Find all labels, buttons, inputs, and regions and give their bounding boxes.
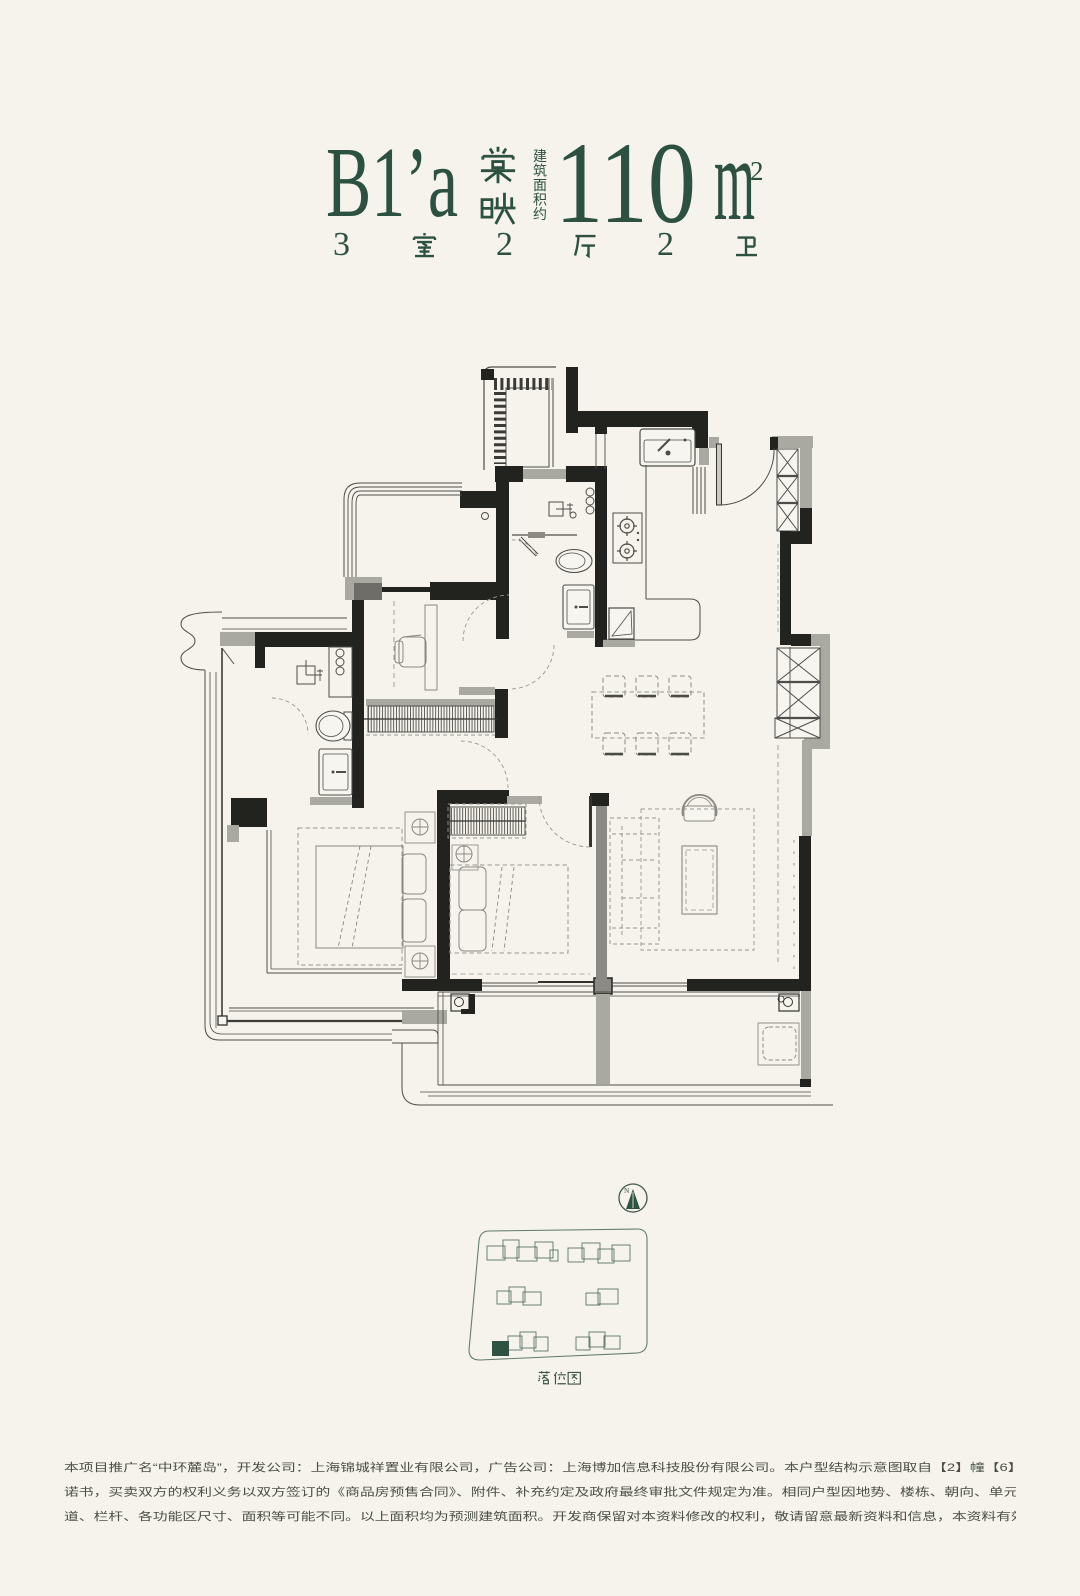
svg-text:N: N (624, 1186, 630, 1195)
svg-text:2: 2 (657, 226, 674, 263)
svg-text:110: 110 (555, 119, 696, 248)
svg-text:2: 2 (496, 226, 513, 263)
svg-text:约: 约 (533, 206, 547, 222)
svg-text:2: 2 (750, 156, 764, 186)
svg-text:B1’a: B1’a (326, 126, 458, 238)
svg-text:m: m (714, 114, 755, 245)
svg-text:3: 3 (333, 226, 350, 263)
